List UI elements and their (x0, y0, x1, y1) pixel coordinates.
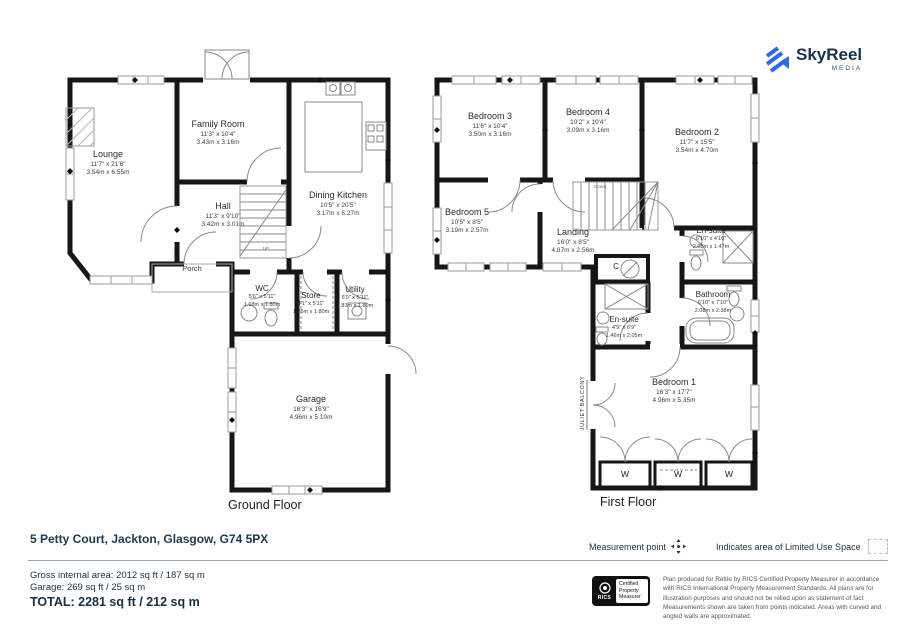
rics-logo: RICS (594, 582, 615, 601)
measurement-point-icon (671, 539, 686, 554)
limited-use-swatch (868, 539, 888, 554)
floorplan-page: Lounge 11'7" x 21'6" 3.54m x 6.55m Famil… (0, 0, 900, 636)
disclaimer-text: Plan produced for Rettie by RICS Certifi… (663, 575, 890, 621)
windows (66, 76, 759, 494)
measurement-point-label: Measurement point (589, 542, 666, 552)
rics-word: RICS (598, 595, 611, 601)
limited-use-label: Indicates area of Limited Use Space (716, 542, 861, 552)
footer-divider (28, 560, 888, 561)
gross-area-line: Gross internal area: 2012 sq ft / 187 sq… (30, 570, 205, 581)
door-openings (174, 77, 685, 429)
legend-measurement-point: Measurement point (589, 539, 686, 554)
legend-limited-use: Indicates area of Limited Use Space (716, 539, 888, 554)
skyreel-logo-icon (764, 46, 791, 77)
measurement-point-marks (67, 77, 758, 493)
property-address: 5 Petty Court, Jackton, Glasgow, G74 5PX (30, 532, 268, 546)
rics-badge: RICS Certified Property Measurer (592, 576, 650, 606)
cert-line3: Measurer (619, 594, 645, 601)
skyreel-logo: SkyReel MEDIA (764, 46, 862, 77)
certified-measurer-box: Certified Property Measurer (616, 579, 648, 603)
garage-area-line: Garage: 269 sq ft / 25 sq m (30, 582, 145, 593)
total-area-line: TOTAL: 2281 sq ft / 212 sq m (30, 595, 200, 609)
brand-subtitle: MEDIA (832, 65, 863, 72)
skyreel-logo-text: SkyReel MEDIA (796, 46, 862, 72)
rics-lion-icon (599, 582, 611, 594)
brand-name: SkyReel (796, 46, 862, 64)
